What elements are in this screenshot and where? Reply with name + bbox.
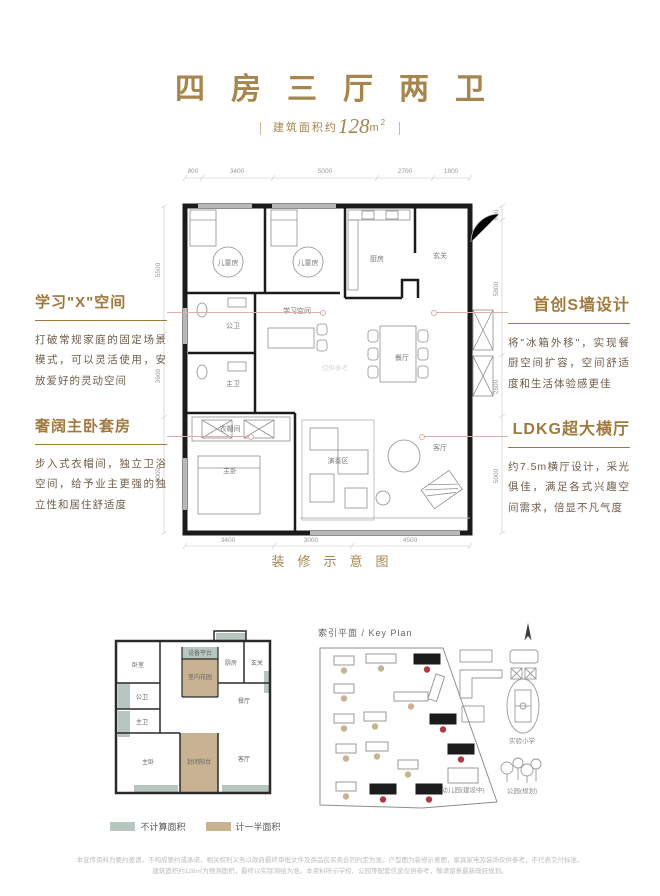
legend-label: 计一半面积	[236, 820, 281, 833]
leader-study	[167, 312, 323, 313]
room-label-kids1: 儿童房	[218, 258, 239, 267]
disclaimer-line1: 本宣传资料为要约邀请，不构成要约或承诺，相关权利义务以政府最终审批文件及商品房买…	[28, 855, 632, 866]
area-sup: 2	[381, 118, 387, 127]
sp-label: 封闭阳台	[187, 758, 211, 766]
sp-label: 主卫	[136, 718, 148, 726]
annotation-heading: LDKG超大横厅	[508, 415, 630, 448]
annotation-heading: 奢阔主卧套房	[35, 415, 167, 445]
dim-right-2: 2600	[493, 379, 500, 394]
room-label-foyer: 玄关	[433, 251, 447, 260]
sp-label: 玄关	[251, 659, 263, 667]
dim-top-2: 5000	[318, 168, 333, 175]
room-label-master: 主卧	[223, 466, 237, 475]
shafts	[473, 310, 493, 396]
sp-label: 卧室	[132, 661, 144, 669]
park-trees-icon	[501, 758, 541, 783]
room-label-dining: 餐厅	[395, 353, 409, 362]
area-subtitle: 建筑面积约128m2	[0, 114, 660, 139]
annotation-s-wall: 首创S墙设计 将"冰箱外移"，实现餐厨空间扩容，空间舒适度和生活体验感更佳	[508, 291, 630, 394]
leader-swall	[434, 312, 508, 313]
leader-master	[167, 436, 251, 437]
disclaimer-line2: 建筑面积约128㎡为预测面积，最终以实际测绘为准。本资料所示学校、公园等配套信息…	[28, 866, 632, 877]
annotation-study: 学习"X"空间 打破常规家庭的固定场景模式，可以灵活使用，安放爱好的灵动空间	[35, 291, 167, 391]
dim-top-0: 800	[188, 168, 199, 175]
dim-right-3: 5000	[493, 468, 500, 483]
room-label-kids2: 儿童房	[298, 258, 319, 267]
legend-item-excluded: 不计算面积	[110, 820, 185, 833]
sp-label: 厨房	[225, 659, 237, 667]
page-title: 四房三厅两卫	[0, 64, 660, 108]
keyplan-map: 实验小学 幼儿园(建设中) 公园(规划)	[310, 640, 560, 855]
legend-label: 不计算面积	[140, 820, 185, 833]
room-label-music: 演奏区	[328, 456, 349, 465]
annotation-heading: 学习"X"空间	[35, 291, 167, 321]
sp-label: 客厅	[238, 755, 250, 763]
annotation-master-suite: 奢阔主卧套房 步入式衣帽间，独立卫浴空间，给予业主更强的独立性和居住舒适度	[35, 415, 167, 515]
kindergarten-label: 幼儿园(建设中)	[441, 785, 484, 794]
area-legend: 不计算面积 计一半面积	[88, 820, 303, 833]
dim-bottom-0: 3400	[221, 537, 236, 544]
park-label: 公园(规划)	[507, 786, 537, 795]
annotation-heading: 首创S墙设计	[508, 291, 630, 324]
keyplan-title: 索引平面 / Key Plan	[318, 626, 413, 639]
sp-label: 设备平台	[188, 649, 212, 657]
room-label-living: 客厅	[433, 443, 447, 452]
area-value: 128	[338, 114, 370, 138]
dim-right-1: 5800	[493, 281, 500, 296]
dim-top-1: 3400	[230, 168, 245, 175]
dim-top-3: 2700	[398, 168, 413, 175]
area-prefix: 建筑面积约	[273, 122, 338, 134]
plan-caption: 装修示意图	[0, 551, 660, 570]
room-label-kitchen: 厨房	[370, 254, 384, 263]
watermark-text: 仅供参考	[322, 363, 349, 372]
room-label-bath-master: 主卫	[226, 379, 240, 388]
dim-left-0: 5500	[155, 262, 162, 277]
dim-top-4: 1800	[444, 168, 459, 175]
sp-label: 主卧	[142, 758, 154, 766]
school-campus	[460, 650, 539, 733]
divider-bar	[260, 122, 261, 135]
main-floorplan: 800 3400 5000 2700 1800 3400 3000 4500 5…	[140, 158, 520, 558]
school-label: 实验小学	[509, 736, 536, 745]
legend-item-half: 计一半面积	[206, 820, 281, 833]
annotation-ldkg: LDKG超大横厅 约7.5m横厅设计，采光俱佳，满足各式兴趣空间需求，倍显不凡气…	[508, 415, 630, 518]
dimension-labels: 800 3400 5000 2700 1800 3400 3000 4500 5…	[155, 168, 500, 544]
sp-label: 室内花园	[188, 673, 212, 681]
room-label-bath-public: 公卫	[226, 322, 240, 330]
area-unit: m	[369, 122, 380, 134]
dim-bottom-2: 4500	[403, 537, 418, 544]
area-fills	[118, 633, 270, 793]
keyplan-buildings	[334, 654, 478, 803]
annotation-body: 步入式衣帽间，独立卫浴空间，给予业主更强的独立性和居住舒适度	[35, 454, 167, 515]
legend-swatch-green	[110, 822, 135, 831]
dim-bottom-1: 3000	[304, 537, 319, 544]
annotation-body: 约7.5m横厅设计，采光俱佳，满足各式兴趣空间需求，倍显不凡气度	[508, 457, 630, 518]
leader-ldkg	[422, 436, 508, 437]
annotation-body: 将"冰箱外移"，实现餐厨空间扩容，空间舒适度和生活体验感更佳	[508, 333, 630, 394]
annotation-body: 打破常规家庭的固定场景模式，可以灵活使用，安放爱好的灵动空间	[35, 330, 167, 391]
room-label-closet: 衣帽间	[220, 424, 241, 433]
divider-bar	[399, 122, 400, 135]
room-label-study: 学习空间	[283, 306, 311, 315]
sp-label: 餐厅	[238, 697, 250, 705]
sp-label: 公卫	[136, 694, 148, 701]
disclaimer: 本宣传资料为要约邀请，不构成要约或承诺，相关权利义务以政府最终审批文件及商品房买…	[28, 855, 632, 877]
small-area-plan: 卧室 设备平台 室内花园 厨房 玄关 公卫 主卫 餐厅 主卧 封闭阳台 客厅	[98, 627, 288, 817]
legend-swatch-tan	[206, 822, 231, 831]
